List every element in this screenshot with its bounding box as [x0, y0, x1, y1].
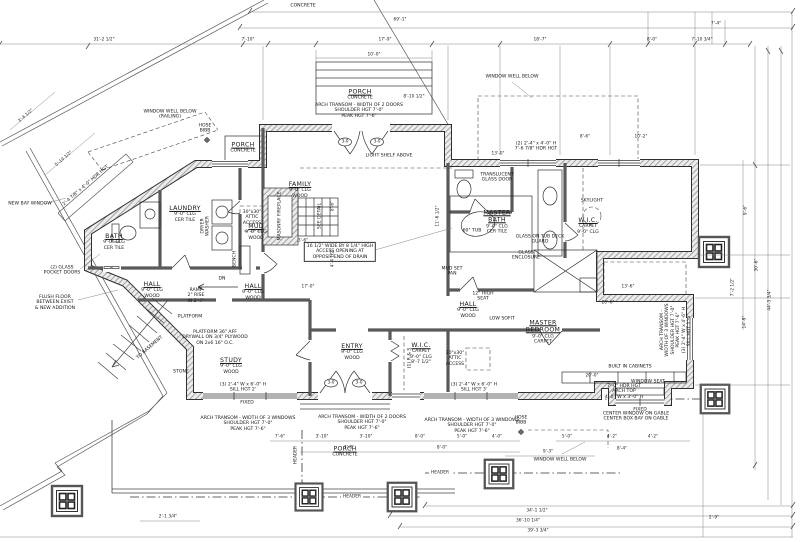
dim-3-6: 3'-6"	[298, 238, 308, 243]
label-tub: 60" TUB	[463, 228, 482, 233]
label-top-windows: (2) 2'-4" x 4'-0" H 7'-6 7/8" HDR HGT	[515, 142, 558, 153]
dim-5-10-diag: 5'-10 1/2"	[54, 150, 73, 168]
label-attic-access-2: 30"x30" ATTIC ACCESS	[446, 351, 465, 367]
label-header-1: HEADER	[341, 494, 363, 499]
dim-30-6: 30'-6"	[754, 259, 759, 272]
bath-sub: 9'-0" CLG CER TILE	[103, 240, 125, 251]
dim-8-0-row2: 8'-0"	[437, 445, 447, 450]
dim-8-4: 8'-4"	[617, 446, 627, 451]
master-bath-name: MASTER BATH	[483, 209, 510, 224]
label-hose-bibb-bottom: HOSE BIBB	[515, 416, 528, 427]
dim-31-2: 31'-2 1/2"	[93, 37, 114, 42]
porch-tl-sub: CONCRETE	[230, 149, 255, 154]
dim-8-6-v: 8'-6"	[330, 201, 335, 211]
label-new-bay-window: NEW BAY WINDOW	[8, 201, 52, 206]
dim-3-4-diag: 3'-4 1/2"	[17, 108, 34, 124]
dim-2-1: 2'-1 3/4"	[159, 514, 177, 519]
dim-39-3: 39'-3 3/4"	[527, 528, 548, 533]
door-tag-2: 3-0	[373, 139, 380, 144]
room-label-porch-tl: PORCHCONCRETE	[230, 142, 255, 155]
dim-7-10: 7'-10"	[242, 37, 255, 42]
hall-mid-sub: 9'-0" CLG WOOD	[242, 290, 264, 301]
label-bench: BENCH	[232, 251, 237, 267]
dim-18-7: 18'-7"	[534, 37, 547, 42]
dim-9-6: 9'-6"	[743, 205, 748, 215]
label-stone: STONE	[173, 369, 189, 374]
dim-13-6: 13'-6"	[622, 284, 635, 289]
dim-5-0-bottom: 5'-0"	[457, 434, 467, 439]
dim-20-6: 20'-6"	[602, 300, 615, 305]
label-platform: PLATFORM	[178, 314, 202, 319]
mud-sub: 9'-0" CLG WOOD	[245, 230, 267, 241]
dim-overall-top: 69'-1"	[394, 17, 407, 22]
dim-7-6: 7'-6"	[275, 434, 285, 439]
room-label-hall-left: HALL9'-0" CLG WOOD	[141, 281, 163, 299]
dim-36-10: 36'-10 1/4"	[516, 518, 540, 523]
label-platform-note: PLATFORM 36" AFF DRYWALL ON 3/4" PLYWOOD…	[182, 330, 248, 346]
label-arch-top-note: 7'-0" HDR HGT ARCH TOP 4'-0" W x 3'-0" H	[605, 384, 643, 400]
master-bath-sub: 9'-0" CLG CER TILE	[483, 224, 510, 235]
dim-44-5: 44'-5 3/4"	[767, 289, 772, 310]
dim-14-9: 14'-9"	[742, 316, 747, 329]
label-dryer-washer: DRYER WASHER	[201, 216, 212, 236]
dim-20-0: 20'-0"	[586, 373, 599, 378]
label-built-in-cabinets: BUILT IN CABINETS	[608, 364, 651, 369]
dim-7-2-1-2: 7'-2 1/2"	[730, 278, 735, 296]
dim-10-2: 10'-2"	[635, 134, 648, 139]
label-header-3: HEADER	[293, 446, 298, 464]
study-sub: 9'-0" CLG WOOD	[220, 364, 242, 375]
label-window-well-railing: WINDOW WELL BELOW (RAILING)	[143, 110, 196, 121]
label-ramp: RAMP 2" RISE IN 2'-7"	[187, 288, 204, 304]
label-rod-shelf: (1) R & S	[407, 348, 412, 369]
label-south-windows: (3) 2'-4" W x 6'-0" H SILL HGT 3'	[451, 383, 497, 394]
label-hose-bibb-top: HOSE BIBB	[199, 124, 212, 135]
laundry-sub: 9'-0" CLG CER TILE	[169, 212, 201, 223]
door-tag-4: 3-0	[355, 380, 362, 385]
room-label-hall-mid: HALL9'-0" CLG WOOD	[242, 283, 264, 301]
dim-3-10-a: 3'-10"	[316, 434, 329, 439]
room-label-hall-master: HALL9'-0" CLG WOOD	[457, 301, 479, 319]
label-window-well-tr: WINDOW WELL BELOW	[485, 74, 538, 79]
dim-8-0-bottom: 8'-0"	[415, 434, 425, 439]
annotation-layer: FAMILY9'-0" CLG WOOD MASTER BATH9'-0" CL…	[0, 0, 800, 542]
wic-master-sub: CARPET 9'-0" CLG	[577, 224, 599, 235]
entry-sub: 9'-0" CLG WOOD	[341, 350, 363, 361]
dim-9-3: 9'-3"	[543, 449, 553, 454]
room-label-master-bedroom: MASTER BEDROOM9'-0" CLG CARPET	[526, 319, 560, 344]
room-label-master-bath: MASTER BATH9'-0" CLG CER TILE	[483, 209, 510, 234]
porch-top-sub: CONCRETE	[347, 96, 372, 101]
label-flush-floor: FLUSH FLOOR BETWEEN EXIST & NEW ADDITION	[35, 295, 75, 311]
dim-34-1: 34'-1 1/2"	[526, 508, 547, 513]
dim-4-2-a: 4'-2"	[607, 434, 617, 439]
dim-8-10-1-2: 8'-10 1/2"	[403, 94, 424, 99]
label-skylight: SKYLIGHT	[581, 198, 603, 203]
room-label-entry: ENTRY9'-0" CLG WOOD	[341, 343, 363, 361]
master-bedroom-name: MASTER BEDROOM	[526, 319, 560, 334]
dim-4-0: 4'-0"	[492, 434, 502, 439]
dim-11-6: 11'-6 1/2"	[435, 205, 440, 226]
dim-17-9: 17'-9"	[379, 37, 392, 42]
label-arch-3win-bottom-right: ARCH TRANSOM - WIDTH OF 3 WINDOWS SHOULD…	[425, 418, 520, 434]
label-concrete: CONCRETE	[290, 3, 315, 8]
room-label-laundry: LAUNDRY9'-0" CLG CER TILE	[169, 205, 201, 223]
label-study-windows: (3) 2'-4" W x 6'-0" H SILL HGT 2'	[220, 383, 266, 394]
dim-5-0-bay: 5'-0"	[562, 434, 572, 439]
label-see-detail: SEE DETAIL	[317, 203, 322, 229]
dim-2-9: 2'-9"	[709, 515, 719, 520]
hall-master-sub: 9'-0" CLG WOOD	[457, 308, 479, 319]
label-mud-pan: MUD SET PAN	[442, 267, 463, 278]
label-center-gable: CENTER WINDOW ON GABLE CENTER BOX BAY ON…	[603, 412, 669, 423]
master-bedroom-sub: 9'-0" CLG CARPET	[526, 334, 560, 345]
porch-bottom-sub: CONCRETE	[332, 453, 357, 458]
dim-7-4: 7'-4"	[711, 21, 721, 26]
dim-13-0: 13'-0"	[492, 151, 505, 156]
door-tag-3: 3-0	[327, 380, 334, 385]
label-window-well-br: WINDOW WELL BELOW	[533, 457, 586, 462]
label-glass-enclosure: GLASS ENCLOSURE	[512, 251, 540, 262]
label-diagonal-window: 2'-4 7/8" x 4'-0" HDR HGT	[62, 165, 110, 208]
label-dn: DN	[219, 276, 226, 281]
dim-7-10-3-4: 7'-10 3/4"	[691, 37, 712, 42]
family-sub: 9'-0" CLG WOOD	[289, 188, 312, 199]
wic-entry-sub: CARPET 9'-0" CLG 8'-7 1/2"	[410, 350, 432, 366]
room-label-study: STUDY9'-0" CLG WOOD	[220, 357, 242, 375]
label-shower-seat: 12" HIGH SEAT	[472, 292, 493, 303]
room-label-family: FAMILY9'-0" CLG WOOD	[289, 181, 312, 199]
label-masonry-fireplace: MASONRY FIREPLACE	[277, 192, 282, 241]
dim-17-0: 17'-0"	[302, 284, 315, 289]
dim-4-4: 4'-4 1/2"	[330, 249, 335, 267]
label-arch-3win-bottom-left: ARCH TRANSOM - WIDTH OF 3 WINDOWS SHOULD…	[201, 416, 296, 432]
hall-left-sub: 9'-0" CLG WOOD	[141, 288, 163, 299]
room-label-bath: BATH9'-0" CLG CER TILE	[103, 233, 125, 251]
door-tag-1: 3-0	[341, 139, 348, 144]
label-to-basement: TO BASEMENT	[136, 335, 165, 361]
label-glass-deck: GLASS ON TUB DECK GUARD	[516, 235, 565, 246]
label-arch-3win-side: ARCH TRANSOM - WIDTH OF 3 WINDOWS SHOULD…	[660, 303, 692, 356]
label-header-2: HEADER	[429, 470, 451, 475]
dim-3-10-b: 3'-10"	[360, 434, 373, 439]
label-pocket-doors: (2) GLASS POCKET DOORS	[44, 266, 81, 277]
label-light-shelf: LIGHT SHELF ABOVE	[366, 153, 413, 158]
dim-8-6: 8'-6"	[580, 134, 590, 139]
label-access-note: 16 1/2" WIDE BY 8 1/4" HIGH ACCESS OPENI…	[304, 242, 376, 262]
label-fixed-study: FIXED	[240, 400, 254, 405]
label-soffit: LOW SOFIT	[489, 316, 514, 321]
label-attic-access-1: 30"x30" ATTIC ACCESS	[243, 210, 262, 226]
label-arch-2doors-bottom: ARCH TRANSOM - WIDTH OF 2 DOORS SHOULDER…	[318, 415, 406, 431]
dim-8-0-top: 8'-0"	[647, 37, 657, 42]
room-label-porch-top: PORCHCONCRETE	[347, 89, 372, 102]
dim-7-8: 7'-8"	[344, 445, 354, 450]
dim-4-2-b: 4'-2"	[648, 434, 658, 439]
label-arch-2doors-top: ARCH TRANSOM - WIDTH OF 2 DOORS SHOULDER…	[315, 103, 403, 119]
room-label-wic-master: W.I.C.CARPET 9'-0" CLG	[577, 217, 599, 235]
floor-plan-sheet: FAMILY9'-0" CLG WOOD MASTER BATH9'-0" CL…	[0, 0, 800, 542]
label-translucent-door: TRANSLUCENT GLASS DOOR	[480, 173, 513, 184]
dim-10-0: 10'-0"	[368, 52, 381, 57]
label-fixed-bay: FIXED	[633, 407, 647, 412]
room-label-wic-entry: W.I.C.CARPET 9'-0" CLG 8'-7 1/2"	[410, 342, 432, 366]
